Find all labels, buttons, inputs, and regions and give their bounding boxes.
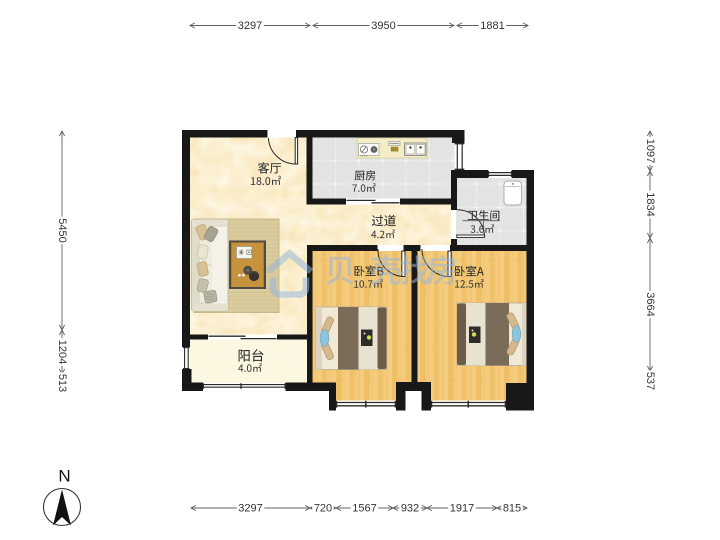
svg-text:N: N <box>58 467 70 486</box>
svg-text:3950: 3950 <box>371 20 395 32</box>
svg-text:3664: 3664 <box>644 292 656 316</box>
svg-text:537: 537 <box>644 372 656 390</box>
svg-text:1567: 1567 <box>352 503 376 515</box>
svg-text:815: 815 <box>503 503 521 515</box>
svg-text:3297: 3297 <box>238 20 262 32</box>
svg-text:720: 720 <box>314 503 332 515</box>
svg-text:932: 932 <box>401 503 419 515</box>
svg-text:1881: 1881 <box>480 20 504 32</box>
svg-text:1917: 1917 <box>450 503 474 515</box>
svg-text:513: 513 <box>56 374 68 392</box>
svg-text:1834: 1834 <box>644 192 656 216</box>
svg-text:1097: 1097 <box>644 139 656 163</box>
svg-text:1204: 1204 <box>56 340 68 364</box>
svg-text:3297: 3297 <box>238 503 262 515</box>
svg-text:5450: 5450 <box>56 218 68 242</box>
